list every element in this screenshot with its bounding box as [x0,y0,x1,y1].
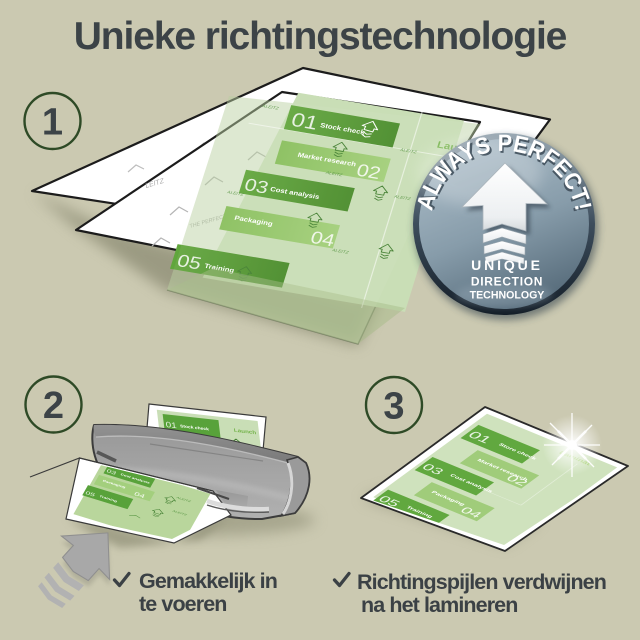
svg-text:te voeren: te voeren [139,592,227,616]
svg-text:DIRECTION: DIRECTION [471,275,543,289]
svg-text:TECHNOLOGY: TECHNOLOGY [470,290,545,302]
svg-text:1: 1 [42,102,63,144]
svg-text:2: 2 [43,385,64,427]
svg-text:UNIQUE: UNIQUE [471,257,543,273]
svg-text:Richtingspijlen verdwijnen: Richtingspijlen verdwijnen [357,570,606,594]
svg-text:Unieke richtingstechnologie: Unieke richtingstechnologie [74,15,567,58]
svg-text:na het lamineren: na het lamineren [361,593,517,617]
svg-text:3: 3 [383,386,404,428]
svg-text:Gemakkelijk in: Gemakkelijk in [139,569,277,593]
